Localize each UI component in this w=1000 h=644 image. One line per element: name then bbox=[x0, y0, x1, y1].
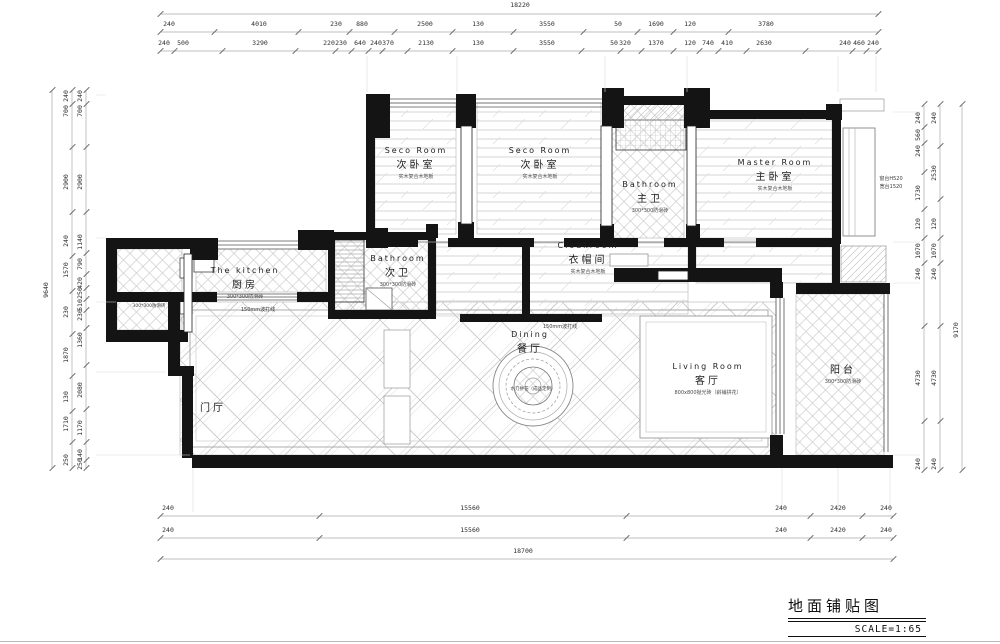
dimension-label: 240 bbox=[930, 112, 938, 124]
dimension-label: 220 bbox=[323, 39, 335, 47]
dimension-label: 15560 bbox=[460, 504, 480, 512]
dimension-label: 1070 bbox=[914, 243, 922, 259]
dimension-label: 2420 bbox=[830, 504, 846, 512]
bay-window-top bbox=[840, 99, 884, 111]
dimension-label: 120 bbox=[684, 20, 696, 28]
dimension-label: 240 bbox=[930, 458, 938, 470]
drawing-scale: SCALE=1:65 bbox=[788, 624, 926, 635]
dimension-label: 4010 bbox=[251, 20, 267, 28]
dimension-label: 3550 bbox=[539, 39, 555, 47]
room-note-text: 实木复合木地板 bbox=[738, 185, 813, 192]
dimension-label: 240 bbox=[914, 268, 922, 280]
dimension-label: 1570 bbox=[62, 262, 70, 278]
dimension-label: 1070 bbox=[930, 243, 938, 259]
bathtub bbox=[616, 120, 686, 150]
dimension-label: 2080 bbox=[76, 382, 84, 398]
scale-rule bbox=[788, 636, 926, 637]
dimension-label: 2500 bbox=[417, 20, 433, 28]
dimension-label: 240 bbox=[775, 504, 787, 512]
dimension-label: 1170 bbox=[76, 420, 84, 436]
room-label-seco-room-1: Seco Room次卧室实木复合木地板 bbox=[385, 146, 448, 180]
dimension-label: 240 bbox=[914, 458, 922, 470]
room-en-text: Seco Room bbox=[509, 146, 572, 155]
dimension-label: 1360 bbox=[76, 332, 84, 348]
dimension-label: 9170 bbox=[952, 322, 960, 338]
room-label-seco-room-2: Seco Room次卧室实木复合木地板 bbox=[509, 146, 572, 180]
dimension-label: 1710 bbox=[62, 416, 70, 432]
title-rule bbox=[788, 618, 926, 622]
dimension-label: 1690 bbox=[648, 20, 664, 28]
room-note-text: 实木复合木地板 bbox=[385, 173, 448, 180]
closet-hatch bbox=[616, 103, 686, 120]
room-note-text: 300*300防滑砖 bbox=[370, 281, 425, 288]
room-note-text: 300*300防滑砖 bbox=[211, 293, 280, 300]
room-zh-text: 次卧室 bbox=[509, 156, 572, 171]
room-en-text: Cloakroom bbox=[558, 241, 619, 250]
dimension-label: 50 bbox=[610, 39, 618, 47]
dimension-label: 4730 bbox=[930, 370, 938, 386]
dimension-label: 18700 bbox=[513, 547, 533, 555]
dimension-label: 240 bbox=[163, 20, 175, 28]
room-zh-text: 主卫 bbox=[622, 190, 677, 205]
dimension-label: 15560 bbox=[460, 526, 480, 534]
annotation-label: 300*300防滑砖 bbox=[133, 303, 166, 309]
dimension-label: 3290 bbox=[252, 39, 268, 47]
room-note-text: 300*300防滑砖 bbox=[622, 207, 677, 214]
room-note-text: 实木复合木地板 bbox=[558, 268, 619, 275]
dimension-label: 130 bbox=[472, 39, 484, 47]
dimension-label: 880 bbox=[356, 20, 368, 28]
dimension-label: 240 bbox=[880, 526, 892, 534]
title-block: 地面铺贴图 SCALE=1:65 bbox=[788, 595, 926, 637]
room-en-text: Living Room bbox=[672, 362, 743, 371]
dimension-label: 3780 bbox=[758, 20, 774, 28]
dimension-label: 250 bbox=[62, 454, 70, 466]
dimension-label: 240 bbox=[158, 39, 170, 47]
dimension-label: 240 bbox=[370, 39, 382, 47]
dimension-label: 240 bbox=[839, 39, 851, 47]
annotation-label: 150mm波打线 bbox=[543, 323, 577, 330]
dimension-label: 120 bbox=[684, 39, 696, 47]
room-label-foyer: 门厅 bbox=[200, 398, 226, 414]
dimension-label: 120 bbox=[914, 218, 922, 230]
dimension-label: 230 bbox=[62, 306, 70, 318]
room-en-text: Dining bbox=[511, 330, 549, 339]
dimension-label: 240 bbox=[162, 526, 174, 534]
dimension-label: 2900 bbox=[62, 174, 70, 190]
dimension-label: 790 bbox=[76, 258, 84, 270]
room-zh-text: 衣帽间 bbox=[558, 251, 619, 266]
room-en-text: Master Room bbox=[738, 158, 813, 167]
dimension-label: 240 bbox=[867, 39, 879, 47]
room-label-master-bathroom: Bathroom主卫300*300防滑砖 bbox=[622, 180, 677, 214]
room-label-living-room: Living Room客厅800x800抛光砖（斜铺拼花） bbox=[672, 362, 743, 396]
room-label-master-room: Master Room主卧室实木复合木地板 bbox=[738, 158, 813, 192]
room-en-text: The kitchen bbox=[211, 266, 280, 275]
dimension-label: 460 bbox=[853, 39, 865, 47]
dimension-label: 9640 bbox=[42, 282, 50, 298]
room-note-text: 300*300防滑砖 bbox=[825, 378, 862, 385]
cabinet bbox=[384, 396, 410, 444]
dimension-label: 240 bbox=[162, 504, 174, 512]
dimension-label: 640 bbox=[354, 39, 366, 47]
dimension-label: 250 bbox=[76, 458, 84, 470]
dimension-label: 2130 bbox=[418, 39, 434, 47]
room-zh-text: 厨房 bbox=[211, 276, 280, 291]
dimension-label: 2530 bbox=[930, 165, 938, 181]
dimension-label: 2420 bbox=[830, 526, 846, 534]
room-note-text: 800x800抛光砖（斜铺拼花） bbox=[672, 389, 743, 396]
dimension-label: 50 bbox=[614, 20, 622, 28]
bay-window bbox=[843, 128, 875, 236]
floor-plan-sheet: { "title_block": { "title": "地面铺贴图", "sc… bbox=[0, 0, 1000, 644]
dimension-label: 240 bbox=[914, 145, 922, 157]
room-label-balcony: 阳台300*300防滑砖 bbox=[825, 360, 862, 385]
dimension-label: 1140 bbox=[76, 234, 84, 250]
annotation-label: 窗台H520 bbox=[879, 175, 902, 182]
dimension-label: 1370 bbox=[648, 39, 664, 47]
room-label-cloakroom: Cloakroom衣帽间实木复合木地板 bbox=[558, 241, 619, 275]
dimension-label: 370 bbox=[382, 39, 394, 47]
room-zh-text: 客厅 bbox=[672, 372, 743, 387]
dimension-label: 500 bbox=[177, 39, 189, 47]
annotation-label: 宽台1520 bbox=[880, 183, 903, 190]
cabinet bbox=[384, 330, 410, 388]
shower bbox=[334, 240, 364, 302]
room-label-kitchen: The kitchen厨房300*300防滑砖 bbox=[211, 266, 280, 300]
sheet-border-line bbox=[0, 641, 1000, 642]
dimension-label: 250 bbox=[76, 287, 84, 299]
dimension-label: 130 bbox=[472, 20, 484, 28]
dimension-label: 240 bbox=[775, 526, 787, 534]
annotation-label: 150mm波打线 bbox=[241, 306, 275, 313]
dimension-label: 560 bbox=[914, 129, 922, 141]
dimension-label: 240 bbox=[914, 112, 922, 124]
dimension-label: 410 bbox=[721, 39, 733, 47]
dimension-label: 18220 bbox=[510, 1, 530, 9]
dimension-label: 2900 bbox=[76, 174, 84, 190]
dimension-label: 230 bbox=[76, 309, 84, 321]
room-en-text: Bathroom bbox=[622, 180, 677, 189]
room-zh-text: 门厅 bbox=[200, 399, 226, 414]
dimension-label: 120 bbox=[930, 218, 938, 230]
dimension-label: 240 bbox=[62, 235, 70, 247]
floor-plan-drawing bbox=[0, 0, 1000, 644]
dimension-label: 240 bbox=[880, 504, 892, 512]
dimension-label: 1870 bbox=[62, 347, 70, 363]
room-en-text: Seco Room bbox=[385, 146, 448, 155]
room-label-dining: Dining餐厅 bbox=[511, 330, 549, 355]
room-zh-text: 主卧室 bbox=[738, 168, 813, 183]
dimension-label: 2630 bbox=[756, 39, 772, 47]
dimension-label: 740 bbox=[702, 39, 714, 47]
ac-platform bbox=[841, 246, 886, 282]
drawing-title: 地面铺贴图 bbox=[788, 595, 926, 616]
room-note-text: 实木复合木地板 bbox=[509, 173, 572, 180]
room-zh-text: 餐厅 bbox=[511, 340, 549, 355]
dimension-label: 1730 bbox=[914, 185, 922, 201]
room-label-second-bathroom: Bathroom次卫300*300防滑砖 bbox=[370, 254, 425, 288]
room-en-text: Bathroom bbox=[370, 254, 425, 263]
room-zh-text: 次卧室 bbox=[385, 156, 448, 171]
dimension-label: 230 bbox=[330, 20, 342, 28]
room-zh-text: 次卫 bbox=[370, 264, 425, 279]
room-zh-text: 阳台 bbox=[825, 361, 862, 376]
dimension-label: 240 bbox=[930, 268, 938, 280]
dimension-label: 230 bbox=[335, 39, 347, 47]
dimension-label: 3550 bbox=[539, 20, 555, 28]
dimension-label: 130 bbox=[62, 391, 70, 403]
dimension-label: 320 bbox=[619, 39, 631, 47]
annotation-label: 水刀拼花（成品定制） bbox=[511, 386, 556, 392]
dimension-label: 4730 bbox=[914, 370, 922, 386]
